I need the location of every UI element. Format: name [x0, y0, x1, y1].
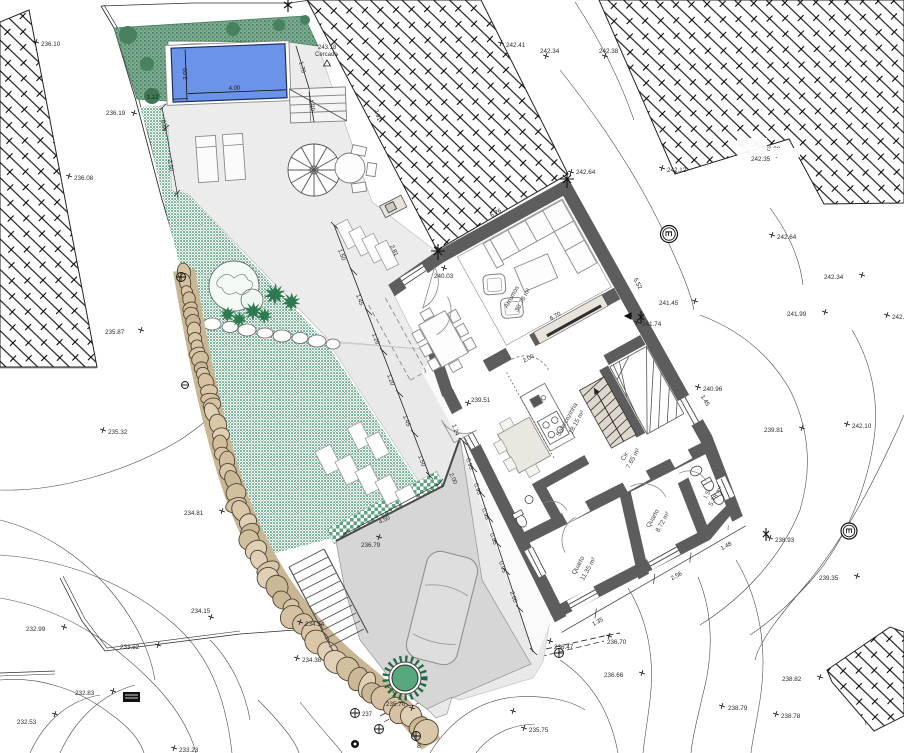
svg-text:236.19: 236.19 [106, 110, 126, 117]
svg-text:241.74: 241.74 [642, 321, 662, 328]
svg-text:8: 8 [417, 743, 421, 750]
svg-text:238.79: 238.79 [728, 705, 748, 712]
svg-text:Cercado: Cercado [315, 52, 338, 58]
svg-text:242.41: 242.41 [506, 42, 526, 49]
svg-text:240.96: 240.96 [703, 386, 723, 393]
svg-text:236.47: 236.47 [554, 644, 574, 651]
svg-text:242.34: 242.34 [824, 274, 844, 281]
svg-text:242.10: 242.10 [852, 423, 872, 430]
svg-text:242.35: 242.35 [751, 156, 771, 163]
svg-text:235.87: 235.87 [105, 329, 125, 336]
svg-text:233.52: 233.52 [120, 644, 140, 651]
svg-text:239.81: 239.81 [764, 427, 784, 434]
svg-text:235.70: 235.70 [386, 701, 406, 708]
svg-text:240.03: 240.03 [434, 273, 454, 280]
svg-text:234.34: 234.34 [305, 621, 325, 628]
svg-text:239.51: 239.51 [471, 397, 491, 404]
svg-text:E: E [844, 528, 854, 534]
svg-text:236.10: 236.10 [41, 41, 61, 48]
svg-text:E: E [664, 231, 674, 237]
svg-text:242.64: 242.64 [576, 169, 596, 176]
svg-text:1.12: 1.12 [147, 95, 160, 101]
svg-text:242.12: 242.12 [667, 167, 687, 174]
svg-text:236.79: 236.79 [361, 542, 381, 549]
svg-text:238.78: 238.78 [781, 713, 801, 720]
svg-text:232.53: 232.53 [17, 719, 37, 726]
svg-text:236.66: 236.66 [604, 672, 624, 679]
svg-text:234.15: 234.15 [191, 608, 211, 615]
svg-text:234.81: 234.81 [184, 510, 204, 517]
svg-text:241.99: 241.99 [787, 311, 807, 318]
svg-text:241.45: 241.45 [659, 300, 679, 307]
svg-text:232.83: 232.83 [75, 690, 95, 697]
svg-text:242.34: 242.34 [540, 48, 560, 55]
svg-text:239.35: 239.35 [819, 575, 839, 582]
svg-text:236.08: 236.08 [74, 175, 94, 182]
svg-text:232.99: 232.99 [26, 626, 46, 633]
svg-text:235.32: 235.32 [108, 429, 128, 436]
svg-text:238.93: 238.93 [775, 537, 795, 544]
svg-text:235.75: 235.75 [529, 727, 549, 734]
svg-text:242.32: 242.32 [892, 314, 904, 321]
svg-text:234.38: 234.38 [302, 657, 322, 664]
svg-text:2.00: 2.00 [183, 67, 189, 80]
svg-text:237: 237 [362, 712, 373, 718]
svg-text:243.18: 243.18 [318, 45, 337, 51]
svg-text:242.38: 242.38 [599, 48, 619, 55]
svg-text:236.70: 236.70 [607, 639, 627, 646]
svg-text:238.82: 238.82 [782, 676, 802, 683]
svg-text:4.00: 4.00 [229, 86, 242, 92]
svg-text:242.64: 242.64 [777, 234, 797, 241]
svg-text:233.23: 233.23 [179, 747, 199, 753]
